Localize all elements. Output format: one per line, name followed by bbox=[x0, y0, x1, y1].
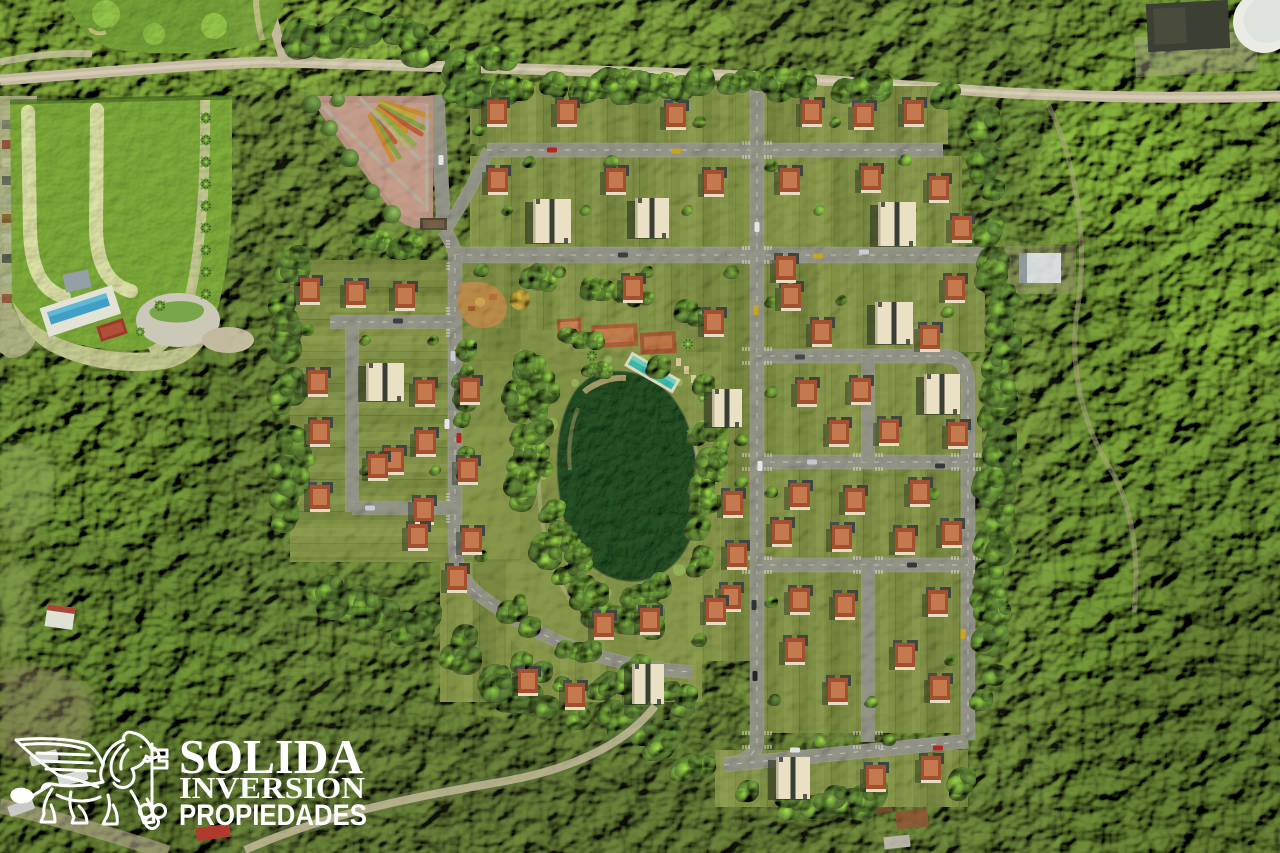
svg-text:PROPIEDADES: PROPIEDADES bbox=[179, 799, 367, 832]
